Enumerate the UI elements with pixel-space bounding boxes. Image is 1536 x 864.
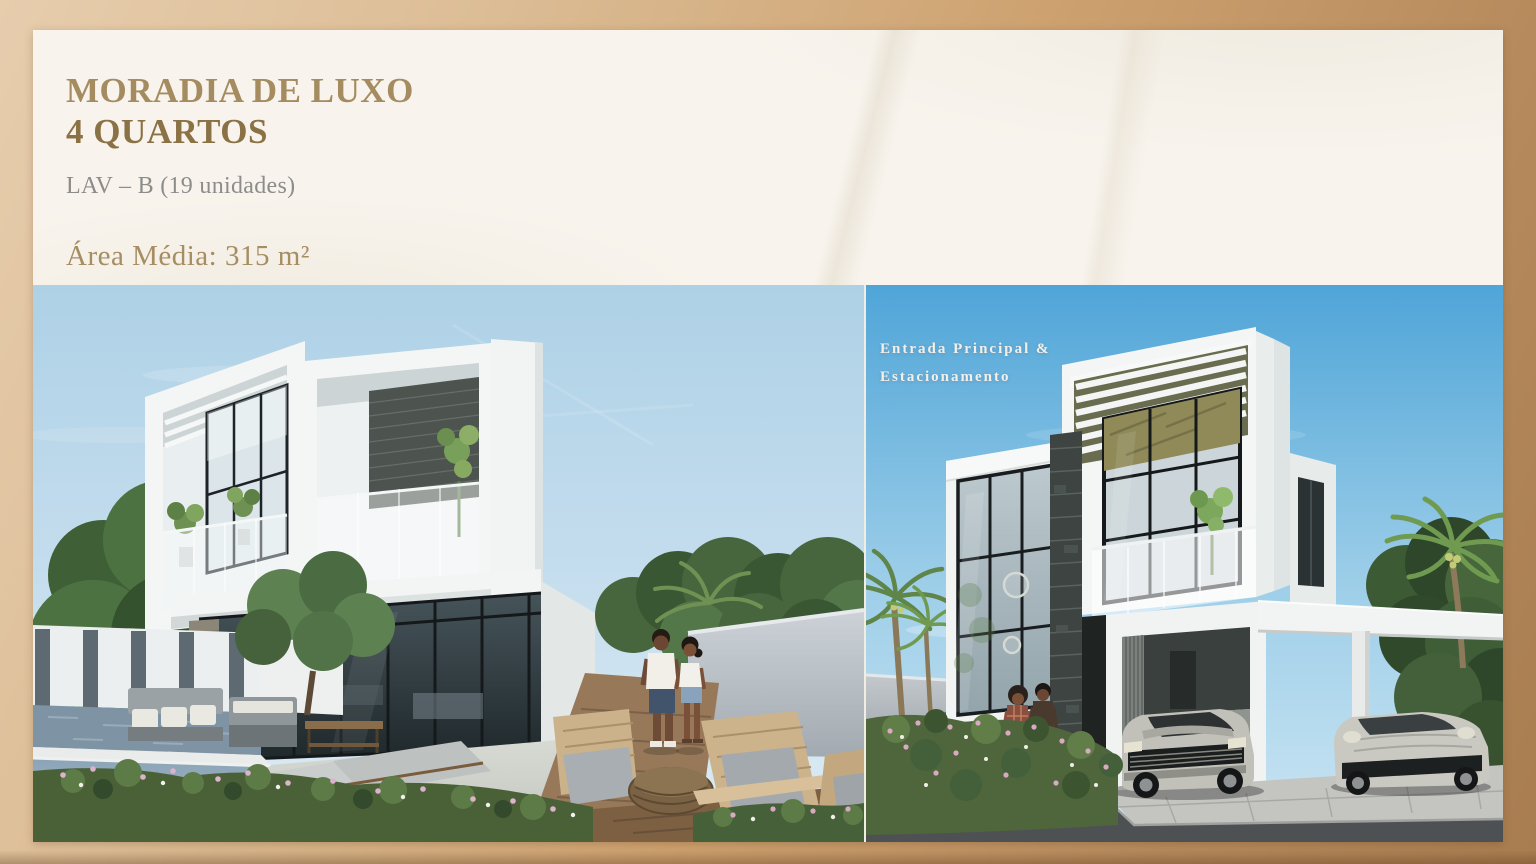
title-line-2: 4 QUARTOS <box>66 111 1503 152</box>
caption-line-1: Entrada Principal & <box>880 335 1051 363</box>
render-caption: Entrada Principal & Estacionamento <box>880 335 1051 391</box>
unit-subtitle: LAV – B (19 unidades) <box>66 173 1503 200</box>
average-area-label: Área Média: 315 m² <box>66 240 1503 273</box>
header: MORADIA DE LUXO 4 QUARTOS LAV – B (19 un… <box>33 30 1503 285</box>
slide-content: MORADIA DE LUXO 4 QUARTOS LAV – B (19 un… <box>33 30 1503 842</box>
render-pool-view <box>33 285 864 842</box>
slide-frame: MORADIA DE LUXO 4 QUARTOS LAV – B (19 un… <box>0 0 1536 864</box>
page-title: MORADIA DE LUXO 4 QUARTOS <box>66 70 1503 152</box>
render-entrance: Entrada Principal & Estacionamento <box>866 285 1503 842</box>
renders-row: Entrada Principal & Estacionamento <box>33 285 1503 842</box>
title-line-1: MORADIA DE LUXO <box>66 71 414 110</box>
render-pool-view-image <box>33 285 864 842</box>
caption-line-2: Estacionamento <box>880 363 1051 391</box>
